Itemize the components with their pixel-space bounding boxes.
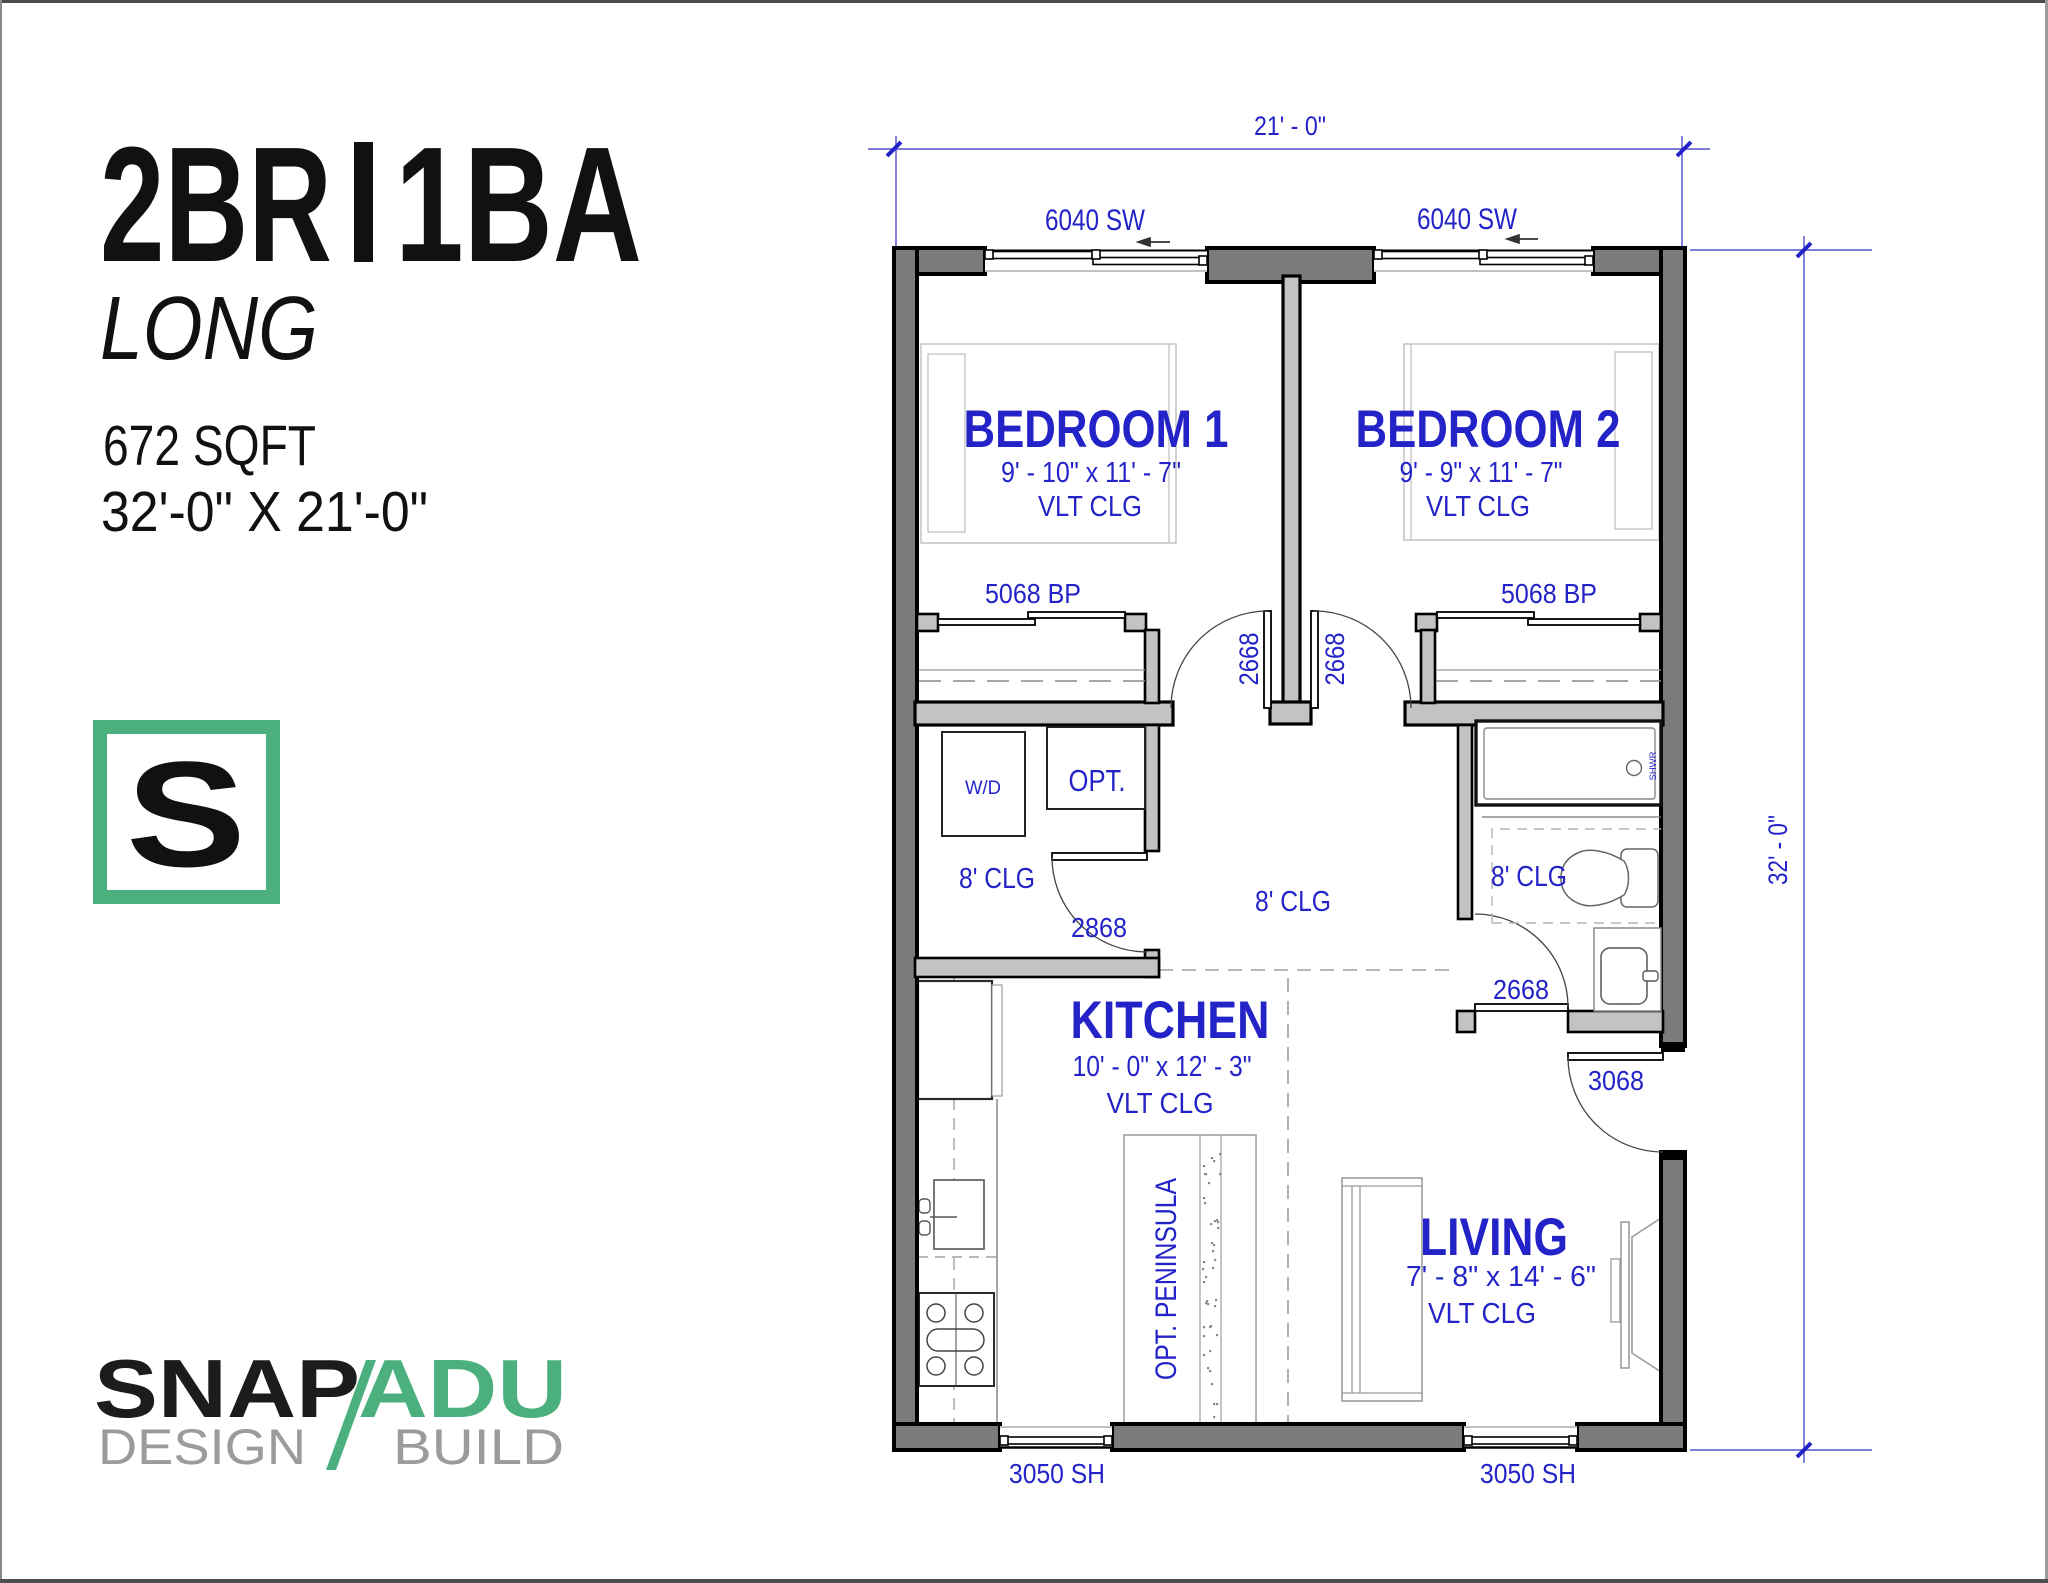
svg-text:3068: 3068 xyxy=(1588,1065,1644,1096)
svg-text:DESIGN: DESIGN xyxy=(98,1419,306,1475)
svg-text:1BA: 1BA xyxy=(395,113,642,296)
svg-text:8' CLG: 8' CLG xyxy=(1255,886,1331,918)
svg-text:W/D: W/D xyxy=(965,778,1001,799)
svg-text:8' CLG: 8' CLG xyxy=(1491,861,1567,893)
svg-text:6040 SW: 6040 SW xyxy=(1417,203,1518,236)
svg-text:VLT CLG: VLT CLG xyxy=(1107,1088,1214,1120)
svg-text:21' - 0": 21' - 0" xyxy=(1254,111,1326,141)
svg-text:S: S xyxy=(126,730,246,898)
svg-text:3050 SH: 3050 SH xyxy=(1009,1458,1105,1489)
svg-text:6040 SW: 6040 SW xyxy=(1045,204,1146,237)
svg-text:VLT CLG: VLT CLG xyxy=(1038,491,1142,523)
svg-text:BUILD: BUILD xyxy=(393,1419,564,1475)
svg-text:10' - 0" x 12' - 3": 10' - 0" x 12' - 3" xyxy=(1073,1051,1252,1083)
svg-text:3050 SH: 3050 SH xyxy=(1480,1458,1576,1489)
svg-text:2668: 2668 xyxy=(1320,633,1350,686)
svg-text:2668: 2668 xyxy=(1234,633,1264,686)
svg-text:OPT. PENINSULA: OPT. PENINSULA xyxy=(1150,1178,1183,1380)
svg-text:5068 BP: 5068 BP xyxy=(985,578,1081,609)
svg-text:9' - 9" x 11' - 7": 9' - 9" x 11' - 7" xyxy=(1400,457,1563,489)
svg-text:5068 BP: 5068 BP xyxy=(1501,578,1597,609)
svg-text:9' - 10" x 11' - 7": 9' - 10" x 11' - 7" xyxy=(1001,457,1181,489)
svg-text:2868: 2868 xyxy=(1071,912,1127,943)
svg-text:BEDROOM 2: BEDROOM 2 xyxy=(1356,400,1621,459)
svg-text:SHWR: SHWR xyxy=(1648,751,1659,780)
svg-text:VLT CLG: VLT CLG xyxy=(1428,1298,1536,1330)
svg-text:BEDROOM 1: BEDROOM 1 xyxy=(964,400,1229,459)
svg-text:2668: 2668 xyxy=(1493,974,1549,1005)
svg-text:8' CLG: 8' CLG xyxy=(959,863,1035,895)
svg-text:VLT CLG: VLT CLG xyxy=(1426,491,1530,523)
svg-text:672 SQFT: 672 SQFT xyxy=(103,414,316,478)
svg-text:2BR: 2BR xyxy=(100,113,332,296)
svg-text:OPT.: OPT. xyxy=(1069,763,1126,798)
svg-text:32'-0" X 21'-0": 32'-0" X 21'-0" xyxy=(101,480,428,544)
svg-text:LONG: LONG xyxy=(100,279,318,379)
svg-text:32' - 0": 32' - 0" xyxy=(1763,815,1793,885)
svg-text:LIVING: LIVING xyxy=(1420,1208,1568,1267)
svg-text:KITCHEN: KITCHEN xyxy=(1071,991,1270,1050)
svg-text:7' - 8" x 14' - 6": 7' - 8" x 14' - 6" xyxy=(1406,1261,1596,1293)
